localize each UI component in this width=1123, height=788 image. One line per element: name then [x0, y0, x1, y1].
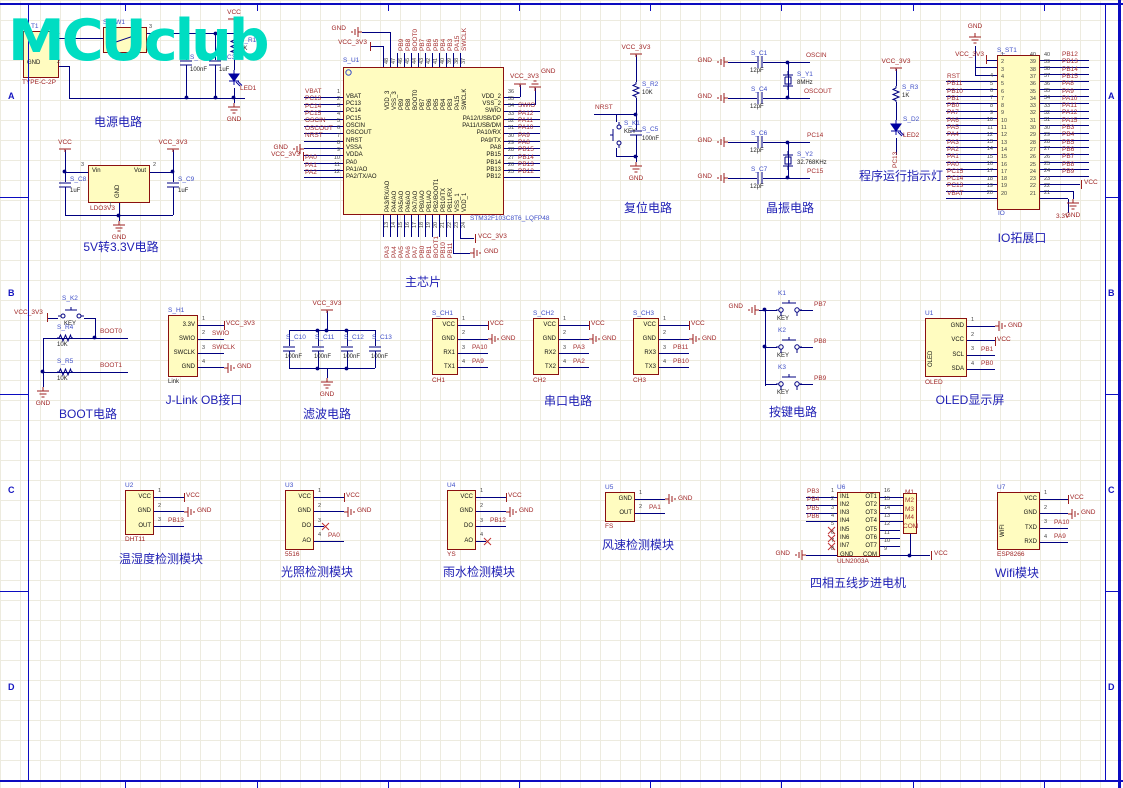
net-label[interactable]: PC13: [893, 152, 900, 168]
net-label[interactable]: SWCLK: [212, 345, 235, 352]
power-label[interactable]: VCC_3V3: [955, 52, 984, 59]
pin-name: OUT: [619, 510, 632, 516]
designator[interactable]: S_C12: [344, 335, 364, 342]
wire: [1040, 198, 1068, 199]
gnd-icon[interactable]: [470, 247, 484, 259]
power-label[interactable]: GND: [698, 138, 712, 145]
wire: [476, 497, 506, 498]
part-comment[interactable]: YS: [447, 552, 456, 559]
designator[interactable]: S_C11: [315, 335, 334, 342]
pin-name: RX3: [644, 350, 656, 356]
designator[interactable]: U4: [447, 483, 455, 490]
capacitor-icon[interactable]: [369, 346, 381, 352]
circuit-caption[interactable]: 滤波电路: [303, 408, 351, 420]
net-label[interactable]: PB5: [807, 506, 819, 513]
power-label[interactable]: GND: [357, 508, 371, 515]
net-label[interactable]: PB11: [448, 243, 455, 258]
net-label[interactable]: PA1: [649, 505, 661, 512]
capacitor-icon[interactable]: [757, 56, 763, 68]
power-label[interactable]: VCC: [997, 337, 1011, 344]
designator[interactable]: S_C6: [751, 131, 767, 138]
circuit-caption[interactable]: 串口电路: [544, 395, 592, 407]
designator[interactable]: S_Y2: [797, 152, 813, 159]
key-icon[interactable]: [609, 122, 623, 148]
net-label[interactable]: SWIO: [212, 331, 229, 338]
net-label[interactable]: PC13: [305, 96, 321, 103]
net-label[interactable]: OSCIN: [806, 53, 827, 60]
value-label: 12pF: [750, 104, 764, 110]
circuit-caption[interactable]: Wifi模块: [995, 567, 1039, 579]
circuit-caption[interactable]: 复位电路: [624, 202, 672, 214]
power-label[interactable]: GND: [1008, 323, 1022, 330]
power-label[interactable]: GND: [227, 117, 241, 124]
pin-name: SWCLK: [462, 89, 468, 110]
pin-number: 10: [1001, 119, 1007, 125]
part-comment[interactable]: CH1: [432, 378, 445, 385]
power-label[interactable]: GND: [320, 392, 334, 399]
pin-number: 11: [884, 531, 890, 537]
net-label[interactable]: PB4: [807, 497, 819, 504]
designator[interactable]: S_C13: [372, 335, 392, 342]
power-label[interactable]: VCC_3V3: [313, 301, 342, 308]
wire: [896, 69, 897, 86]
gnd-icon[interactable]: [35, 387, 51, 400]
designator[interactable]: S_R2: [642, 82, 658, 89]
net-label[interactable]: OSCIN: [305, 118, 326, 125]
gnd-icon[interactable]: [184, 506, 198, 518]
net-label[interactable]: M1: [905, 490, 914, 497]
net-label[interactable]: PB3: [807, 489, 819, 496]
power-label[interactable]: VCC_3V3: [478, 234, 507, 241]
key-icon[interactable]: [58, 306, 84, 320]
net-label[interactable]: SWCLK: [462, 28, 469, 51]
part-comment[interactable]: STM32F103C8T6_LQFP48: [470, 216, 549, 223]
power-label[interactable]: VCC: [490, 321, 504, 328]
net-label[interactable]: PA0: [328, 533, 340, 540]
capacitor-icon[interactable]: [283, 346, 295, 352]
net-label[interactable]: PB11: [947, 81, 962, 88]
pin-name: OT3: [865, 510, 877, 516]
circuit-caption[interactable]: 四相五线步进电机: [810, 577, 906, 589]
net-label[interactable]: M3: [905, 507, 914, 514]
value-label: 32.768KHz: [797, 160, 827, 166]
circuit-caption[interactable]: BOOT电路: [59, 408, 117, 420]
gnd-icon[interactable]: [111, 221, 127, 234]
led-icon[interactable]: [889, 120, 904, 138]
wire: [314, 541, 344, 542]
key-icon[interactable]: [776, 336, 802, 354]
capacitor-icon[interactable]: [757, 92, 763, 104]
gnd-icon[interactable]: [348, 26, 362, 38]
power-icon[interactable]: [1080, 180, 1083, 189]
gnd-icon[interactable]: [745, 304, 759, 316]
power-icon[interactable]: [321, 309, 333, 313]
gnd-icon[interactable]: [488, 333, 502, 345]
part-comment[interactable]: IO: [998, 211, 1005, 218]
circuit-caption[interactable]: J-Link OB接口: [166, 394, 243, 406]
net-label[interactable]: PA1: [947, 154, 959, 161]
net-label[interactable]: PA10: [472, 345, 487, 352]
designator[interactable]: S_ST1: [997, 48, 1017, 55]
power-label[interactable]: GND: [629, 176, 643, 183]
pin-name: VCC: [543, 322, 556, 328]
part-comment[interactable]: LED2: [903, 133, 919, 140]
gnd-icon[interactable]: [689, 333, 703, 345]
wire: [880, 530, 900, 531]
designator[interactable]: U6: [837, 485, 845, 492]
pin-name: AO: [464, 538, 473, 544]
part-comment[interactable]: LED1: [240, 86, 256, 93]
net-label[interactable]: PB11: [673, 345, 688, 352]
power-icon[interactable]: [890, 67, 902, 71]
sheet-border: [0, 197, 28, 198]
gnd-icon[interactable]: [506, 506, 520, 518]
wire: [559, 339, 589, 340]
power-icon[interactable]: [59, 148, 71, 152]
power-label[interactable]: GND: [484, 249, 498, 256]
designator[interactable]: S_C1: [751, 51, 767, 58]
net-label[interactable]: PB10: [673, 359, 689, 366]
designator[interactable]: U1: [925, 311, 933, 318]
gnd-icon[interactable]: [319, 378, 335, 391]
wire: [65, 172, 88, 173]
net-label[interactable]: PA3: [573, 345, 585, 352]
power-label[interactable]: VCC_3V3: [159, 140, 188, 147]
wire: [458, 325, 488, 326]
resistor-icon[interactable]: [57, 334, 73, 342]
net-label[interactable]: VBAT: [947, 191, 964, 198]
junction-dot: [786, 96, 789, 99]
designator[interactable]: S_K2: [62, 296, 78, 303]
part-comment[interactable]: OLED: [925, 380, 943, 387]
designator[interactable]: S_R3: [902, 85, 918, 92]
net-label[interactable]: PA8: [1062, 81, 1074, 88]
power-icon[interactable]: [514, 83, 526, 87]
pin-number: 28: [1044, 140, 1050, 146]
power-icon[interactable]: [474, 234, 477, 243]
gnd-icon[interactable]: [665, 493, 679, 505]
designator[interactable]: S_H1: [168, 308, 184, 315]
circuit-caption[interactable]: 风速检测模块: [602, 539, 674, 551]
power-label[interactable]: GND: [776, 551, 790, 558]
designator[interactable]: S_C7: [751, 167, 767, 174]
pin-name: VSS_2: [482, 101, 501, 107]
power-label[interactable]: GND: [519, 508, 533, 515]
pin-number: 3: [158, 518, 161, 524]
net-label[interactable]: PA9: [1054, 534, 1066, 541]
designator[interactable]: S_CH2: [533, 311, 554, 318]
pin-number: 10: [334, 156, 340, 162]
pin-number: 27: [1030, 148, 1036, 154]
gnd-icon[interactable]: [344, 506, 358, 518]
net-label[interactable]: M4: [905, 515, 914, 522]
power-label[interactable]: GND: [602, 336, 616, 343]
no-connect-icon[interactable]: [484, 538, 491, 545]
gnd-icon[interactable]: [995, 320, 1009, 332]
gnd-icon[interactable]: [967, 33, 983, 46]
circuit-caption[interactable]: 雨水检测模块: [443, 566, 515, 578]
power-icon[interactable]: [630, 53, 642, 57]
power-label[interactable]: VCC: [591, 321, 605, 328]
pin-number: 8: [831, 547, 834, 553]
pin-number: 37: [1044, 74, 1050, 80]
power-icon[interactable]: [985, 55, 988, 64]
part-comment[interactable]: DHT11: [125, 537, 145, 544]
power-label[interactable]: VCC: [1084, 180, 1098, 187]
power-icon[interactable]: [930, 551, 933, 560]
gnd-icon[interactable]: [589, 333, 603, 345]
designator[interactable]: U7: [997, 485, 1005, 492]
pin-number: 38: [1030, 68, 1036, 74]
pin-number: 18: [1001, 177, 1007, 183]
circuit-caption[interactable]: 按键电路: [769, 406, 817, 418]
net-label[interactable]: PB9: [1062, 169, 1074, 176]
pin-number: 12: [884, 522, 890, 528]
net-label[interactable]: PA2: [305, 170, 317, 177]
capacitor-icon[interactable]: [341, 346, 353, 352]
power-label[interactable]: GND: [698, 94, 712, 101]
net-label[interactable]: PA10: [518, 125, 533, 132]
pin-number: 36: [1030, 82, 1036, 88]
pin-name: PB5: [434, 99, 440, 110]
pin-number: 35: [508, 97, 514, 103]
junction-dot: [345, 367, 348, 370]
pin-number: 5: [1001, 82, 1004, 88]
no-connect-icon[interactable]: [322, 523, 329, 530]
net-label[interactable]: PB15: [518, 147, 534, 154]
pin-number: 3: [202, 346, 205, 352]
circuit-caption[interactable]: 温湿度检测模块: [119, 553, 203, 565]
pin-number: 1: [1001, 53, 1004, 59]
pin-number: 26: [1030, 155, 1036, 161]
power-label[interactable]: GND: [332, 26, 346, 33]
net-label[interactable]: PB4: [1062, 132, 1074, 139]
designator[interactable]: K3: [778, 365, 786, 372]
power-icon[interactable]: [167, 148, 179, 152]
circuit-caption[interactable]: IO拓展口: [998, 232, 1047, 244]
net-label[interactable]: M2: [905, 498, 914, 505]
crystal-icon[interactable]: [781, 151, 795, 170]
circuit-caption[interactable]: 晶振电路: [766, 202, 814, 214]
net-label[interactable]: PA10: [1054, 520, 1069, 527]
net-label[interactable]: PB12: [490, 518, 506, 525]
net-label[interactable]: PB0: [981, 361, 993, 368]
wire: [65, 187, 66, 215]
power-label[interactable]: 3.3V: [1056, 214, 1069, 221]
pin-number: 7: [1001, 97, 1004, 103]
power-label[interactable]: GND: [678, 496, 692, 503]
part-comment[interactable]: FS: [605, 524, 613, 531]
pin-number: 10: [987, 118, 993, 124]
net-label[interactable]: PC14: [807, 133, 823, 140]
designator[interactable]: S_C9: [178, 177, 194, 184]
part-comment[interactable]: LDO3V3: [90, 206, 115, 213]
net-label[interactable]: PA9: [472, 359, 484, 366]
designator[interactable]: K2: [778, 328, 786, 335]
net-label[interactable]: PA7: [947, 110, 959, 117]
gnd-icon[interactable]: [714, 136, 728, 148]
sheet-border: [28, 3, 29, 782]
net-label[interactable]: NRST: [595, 105, 613, 112]
pin-name: VCC: [460, 494, 473, 500]
capacitor-icon[interactable]: [312, 346, 324, 352]
capacitor-icon[interactable]: [757, 136, 763, 148]
part-marker-icon[interactable]: [345, 69, 352, 76]
designator[interactable]: U5: [605, 485, 613, 492]
circuit-caption[interactable]: 5V转3.3V电路: [83, 241, 158, 253]
gnd-icon[interactable]: [224, 362, 238, 374]
pin-name: PB2/BOOT1: [434, 179, 440, 212]
power-label[interactable]: VCC: [186, 493, 200, 500]
pin-number: 22: [448, 222, 454, 228]
gnd-icon[interactable]: [226, 103, 242, 116]
designator[interactable]: K1: [778, 291, 786, 298]
gnd-icon[interactable]: [714, 56, 728, 68]
designator[interactable]: U2: [125, 483, 133, 490]
circuit-caption[interactable]: OLED显示屏: [936, 394, 1005, 406]
designator[interactable]: U3: [285, 483, 293, 490]
designator[interactable]: S_C8: [70, 177, 86, 184]
net-label[interactable]: PC15: [807, 169, 823, 176]
capacitor-icon[interactable]: [757, 172, 763, 184]
power-label[interactable]: VCC: [1070, 495, 1084, 502]
part-comment[interactable]: ULN2003A: [837, 559, 869, 566]
designator[interactable]: S_Y1: [797, 72, 813, 79]
net-label[interactable]: PA4: [947, 132, 959, 139]
power-label[interactable]: VCC: [508, 493, 522, 500]
power-label[interactable]: GND: [702, 336, 716, 343]
circuit-caption[interactable]: 主芯片: [405, 276, 441, 288]
power-label[interactable]: VCC_3V3: [338, 40, 367, 47]
gnd-icon[interactable]: [1065, 199, 1081, 212]
power-label[interactable]: GND: [197, 508, 211, 515]
gnd-icon[interactable]: [714, 92, 728, 104]
gnd-icon[interactable]: [792, 549, 806, 561]
power-label[interactable]: VCC: [691, 321, 705, 328]
power-label[interactable]: GND: [729, 304, 743, 311]
net-label[interactable]: SWIO: [518, 103, 535, 110]
designator[interactable]: S_D2: [903, 117, 919, 124]
pin-name: GND: [840, 552, 853, 558]
power-icon[interactable]: [369, 42, 372, 51]
part-comment[interactable]: ESP8266: [997, 552, 1024, 559]
pin-number: 15: [884, 497, 890, 503]
zone-letter: C: [1108, 486, 1115, 495]
part-comment[interactable]: 5516: [285, 552, 299, 559]
pin-name: OT5: [865, 527, 877, 533]
designator[interactable]: S_CH1: [432, 311, 453, 318]
power-label[interactable]: GND: [237, 364, 251, 371]
net-label[interactable]: PA2: [573, 359, 585, 366]
power-label[interactable]: VCC_3V3: [882, 59, 911, 66]
designator[interactable]: S_R4: [57, 325, 73, 332]
net-label[interactable]: PB7: [1062, 154, 1074, 161]
key-icon[interactable]: [776, 373, 802, 391]
pin-number: 3: [663, 346, 666, 352]
designator[interactable]: S_C5: [642, 127, 658, 134]
designator[interactable]: S_K1: [624, 121, 640, 128]
pin-name: VDDA: [346, 152, 363, 158]
resistor-icon[interactable]: [632, 82, 640, 98]
crystal-icon[interactable]: [781, 71, 795, 90]
pin-number: 25: [508, 170, 514, 176]
gnd-icon[interactable]: [714, 172, 728, 184]
net-label[interactable]: PB12: [518, 169, 534, 176]
circuit-caption[interactable]: 程序运行指示灯: [859, 170, 943, 182]
designator[interactable]: S_R5: [57, 359, 73, 366]
pin-number: 16: [406, 222, 412, 228]
power-label[interactable]: VCC_3V3: [510, 74, 539, 81]
resistor-icon[interactable]: [892, 86, 900, 102]
pin-number: 3: [563, 346, 566, 352]
power-label[interactable]: VCC: [346, 493, 360, 500]
designator[interactable]: S_U1: [343, 58, 359, 65]
net-label[interactable]: OSCOUT: [804, 89, 832, 96]
wire: [84, 318, 95, 319]
power-label[interactable]: GND: [541, 69, 555, 76]
power-label[interactable]: GND: [36, 401, 50, 408]
power-label[interactable]: VCC: [934, 551, 948, 558]
power-label[interactable]: GND: [501, 336, 515, 343]
net-label[interactable]: PA12: [1062, 110, 1077, 117]
junction-dot: [786, 141, 789, 144]
gnd-icon[interactable]: [1068, 508, 1082, 520]
value-label: 100nF: [314, 354, 331, 360]
net-label[interactable]: NRST: [305, 133, 323, 140]
key-icon[interactable]: [776, 299, 802, 317]
part-comment[interactable]: CH2: [533, 378, 546, 385]
gnd-icon[interactable]: [628, 162, 644, 175]
net-label[interactable]: PB7: [814, 302, 826, 309]
wire: [896, 102, 897, 120]
net-label[interactable]: PB8: [814, 339, 826, 346]
resistor-icon[interactable]: [57, 368, 73, 376]
power-label[interactable]: GND: [698, 58, 712, 65]
part-comment[interactable]: CH3: [633, 378, 646, 385]
wire: [967, 369, 995, 370]
sheet-border: [0, 3, 1123, 5]
power-icon[interactable]: [46, 313, 49, 322]
net-label[interactable]: PB9: [814, 376, 826, 383]
power-label[interactable]: GND: [968, 24, 982, 31]
designator[interactable]: S_C10: [286, 335, 306, 342]
net-label[interactable]: PB6: [807, 514, 819, 521]
power-label[interactable]: GND: [1081, 510, 1095, 517]
net-label[interactable]: PB1: [981, 347, 993, 354]
net-label[interactable]: PA0: [305, 155, 317, 162]
net-label[interactable]: PB13: [168, 518, 184, 525]
circuit-caption[interactable]: 电源电路: [94, 116, 142, 128]
power-label[interactable]: VCC_3V3: [622, 45, 651, 52]
power-label[interactable]: GND: [698, 174, 712, 181]
net-label[interactable]: PB13: [1062, 59, 1078, 66]
pin-name: DO: [302, 523, 311, 529]
pin-number: 15: [1001, 155, 1007, 161]
power-label[interactable]: VCC_3V3: [226, 321, 255, 328]
power-label[interactable]: VCC_3V3: [271, 152, 300, 159]
power-label[interactable]: VCC: [58, 140, 72, 147]
designator[interactable]: S_CH3: [633, 311, 654, 318]
wire: [453, 253, 470, 254]
circuit-caption[interactable]: 光照检测模块: [281, 566, 353, 578]
net-label[interactable]: COM: [903, 524, 918, 531]
net-label[interactable]: BOOT1: [100, 363, 122, 370]
net-label[interactable]: BOOT0: [100, 329, 122, 336]
net-label[interactable]: PC13: [947, 183, 963, 190]
pin-number: 4: [971, 362, 974, 368]
pin-name: IN3: [840, 510, 849, 516]
designator[interactable]: S_C4: [751, 87, 767, 94]
